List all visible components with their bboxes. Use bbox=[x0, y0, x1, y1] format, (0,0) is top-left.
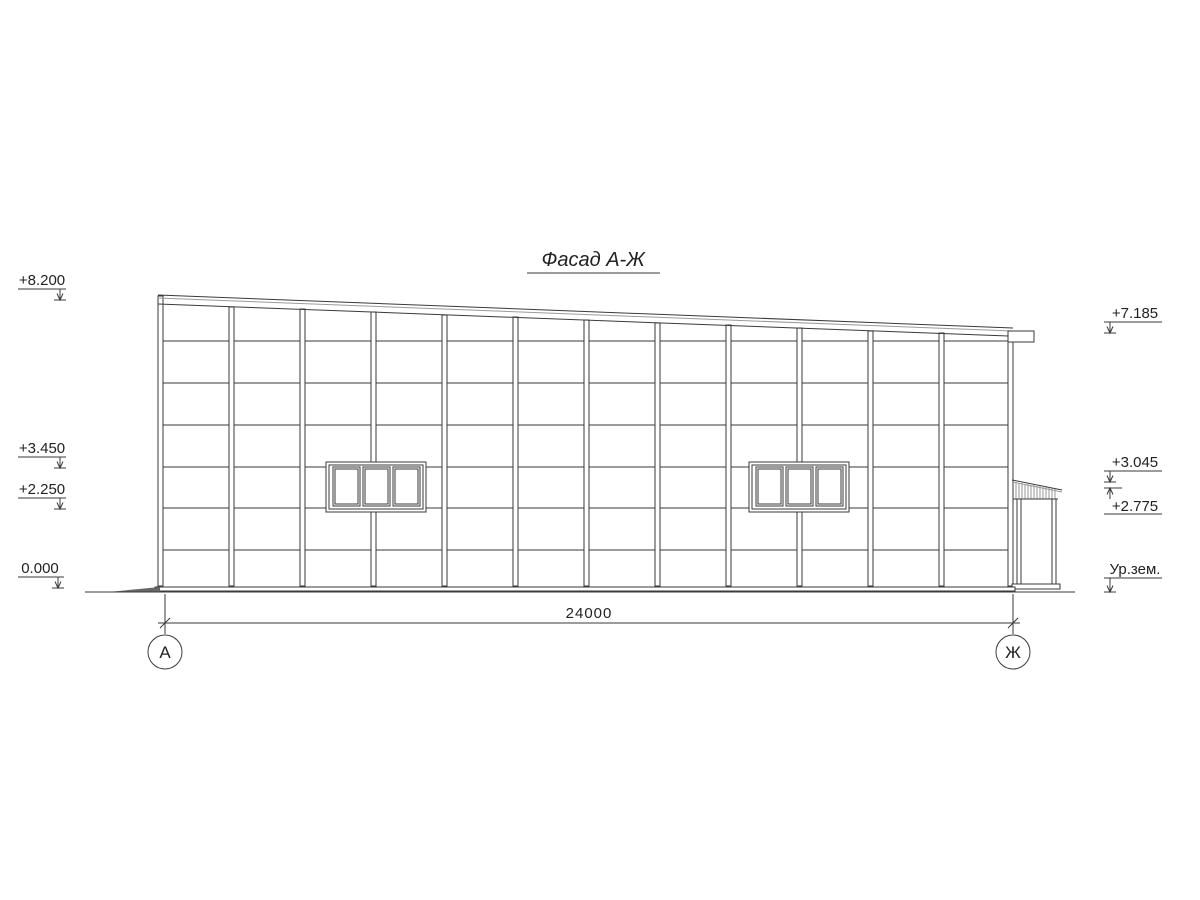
down-arrow-icon bbox=[1104, 471, 1116, 482]
elevation-marker-2775: +2.775 bbox=[1104, 488, 1162, 515]
window-pane-inner bbox=[758, 469, 781, 504]
elevation-label: +7.185 bbox=[1112, 305, 1158, 322]
window-right bbox=[749, 462, 849, 512]
elevation-marker-2250: +2.250 bbox=[18, 481, 66, 509]
mullion bbox=[442, 315, 447, 586]
elevation-label: +8.200 bbox=[19, 272, 65, 289]
elevation-marker-7185: +7.185 bbox=[1104, 305, 1162, 333]
wall-edge-left bbox=[158, 296, 163, 586]
elevation-marker-ground-level: Ур.зем. bbox=[1104, 561, 1162, 592]
elevation-label: +2.775 bbox=[1112, 498, 1158, 515]
elevation-marker-3045: +3.045 bbox=[1104, 454, 1162, 482]
roof-fascia-projection bbox=[1008, 331, 1034, 342]
elevation-marker-8200: +8.200 bbox=[18, 272, 66, 300]
dimension-value: 24000 bbox=[566, 605, 613, 622]
elevation-label: +3.450 bbox=[19, 440, 65, 457]
mullion bbox=[797, 328, 802, 586]
annex-base bbox=[1012, 584, 1060, 589]
axis-label-right: Ж bbox=[1005, 643, 1021, 662]
mullion bbox=[868, 331, 873, 586]
annex-wall-left bbox=[1017, 499, 1021, 584]
elevation-label: Ур.зем. bbox=[1110, 561, 1161, 578]
down-arrow-icon bbox=[1104, 578, 1116, 592]
down-arrow-icon bbox=[54, 457, 66, 468]
facade-grid bbox=[158, 296, 1013, 586]
building-base-band bbox=[155, 587, 1015, 591]
mullion bbox=[300, 309, 305, 586]
ground-slope-wedge bbox=[108, 587, 160, 592]
mullion bbox=[939, 333, 944, 586]
wall-edge-right bbox=[1008, 332, 1013, 586]
facade-drawing: Фасад А-Ж bbox=[0, 0, 1200, 900]
page-title: Фасад А-Ж bbox=[541, 249, 646, 271]
elevation-marker-3450: +3.450 bbox=[18, 440, 66, 468]
down-arrow-icon bbox=[1104, 322, 1116, 333]
dimension-total-width: 24000 bbox=[158, 594, 1020, 634]
window-pane-inner bbox=[788, 469, 811, 504]
window-pane-inner bbox=[818, 469, 841, 504]
annex-wall-right bbox=[1052, 499, 1056, 584]
elevation-label: +2.250 bbox=[19, 481, 65, 498]
axis-bubble-a: А bbox=[148, 635, 182, 669]
window-pane-inner bbox=[335, 469, 358, 504]
mullion bbox=[584, 320, 589, 586]
axis-bubble-zh: Ж bbox=[996, 635, 1030, 669]
elevation-label: +3.045 bbox=[1112, 454, 1158, 471]
down-arrow-icon bbox=[54, 289, 66, 300]
axis-label-left: А bbox=[159, 643, 171, 662]
down-arrow-icon bbox=[52, 577, 64, 588]
annex bbox=[1012, 480, 1062, 589]
ground bbox=[85, 587, 1075, 592]
roof-band-bottom-line bbox=[158, 304, 1008, 336]
mullion bbox=[371, 312, 376, 586]
mullion bbox=[726, 325, 731, 586]
window-pane-inner bbox=[365, 469, 388, 504]
mullion bbox=[229, 307, 234, 586]
elevation-label: 0.000 bbox=[21, 560, 59, 577]
mullion bbox=[513, 317, 518, 586]
drawing-title: Фасад А-Ж bbox=[527, 249, 660, 273]
window-pane-inner bbox=[395, 469, 418, 504]
mullion bbox=[655, 323, 660, 586]
roof-parapet bbox=[158, 295, 1034, 342]
elevation-marker-0000: 0.000 bbox=[18, 560, 64, 588]
down-arrow-icon bbox=[54, 498, 66, 509]
window-left bbox=[326, 462, 426, 512]
